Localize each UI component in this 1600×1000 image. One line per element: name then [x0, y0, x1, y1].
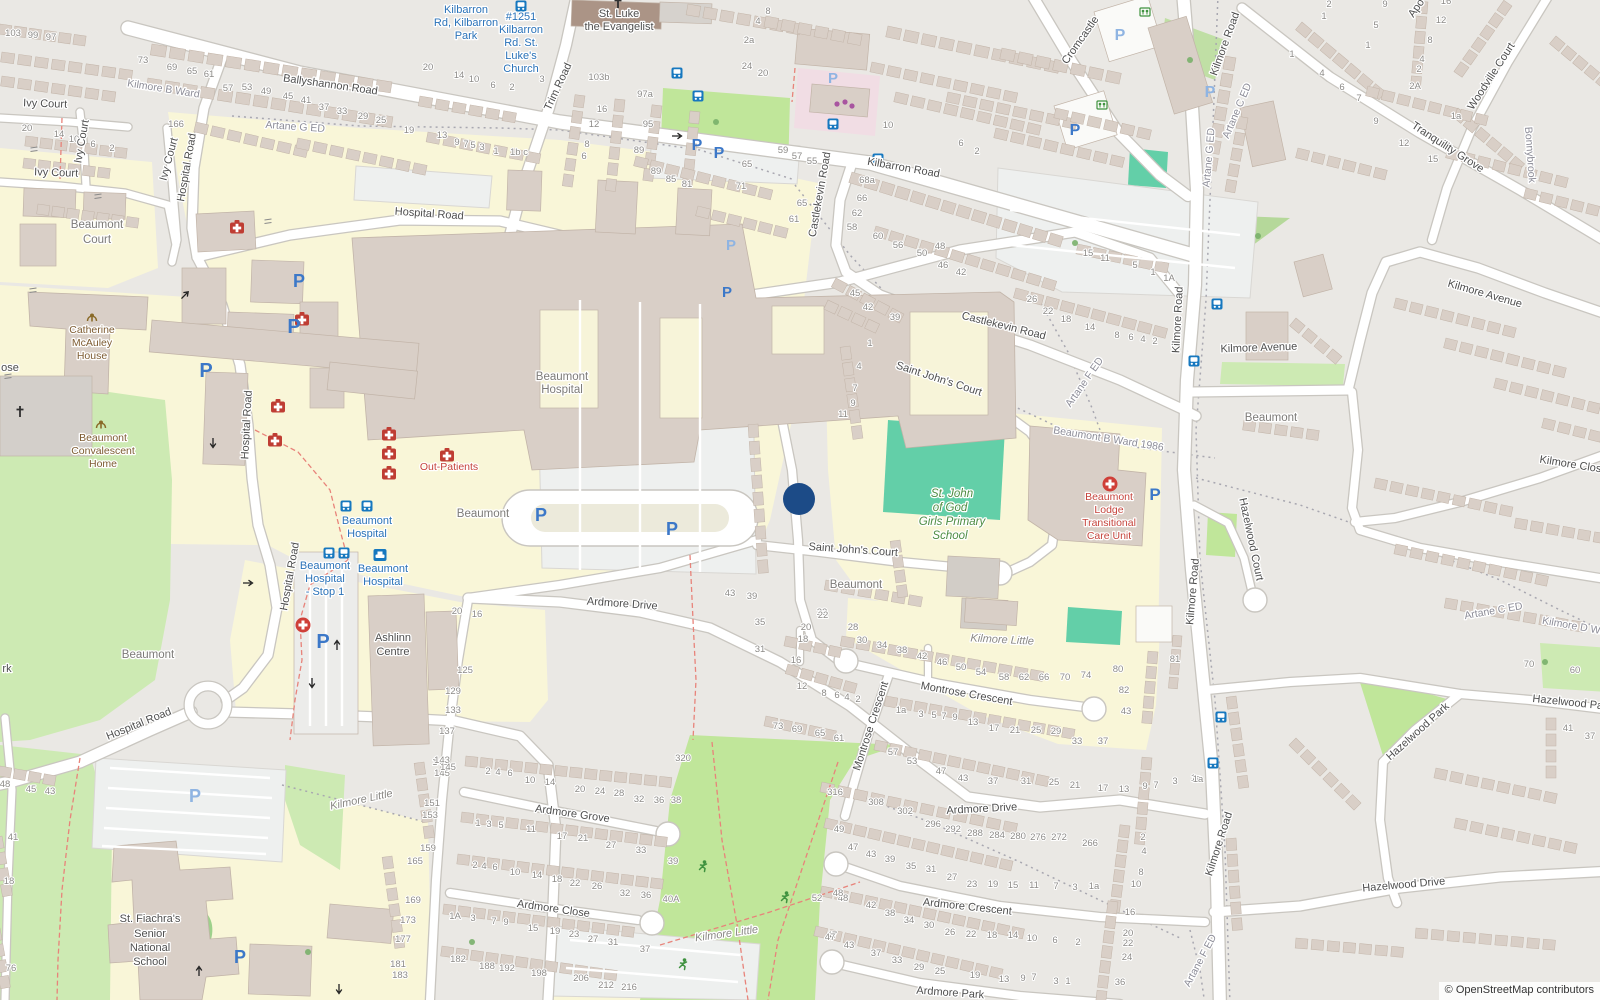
road-label: Ivy Court — [23, 97, 67, 111]
house — [1562, 526, 1576, 538]
house — [1214, 106, 1227, 121]
house — [1374, 478, 1388, 490]
house-number: 308 — [868, 797, 884, 808]
parking-icon[interactable]: P — [293, 271, 305, 291]
house — [749, 441, 760, 455]
bus-stop-icon[interactable] — [1189, 356, 1200, 367]
house-number: 212 — [598, 980, 614, 991]
house — [1519, 571, 1533, 583]
house-number: 20 — [22, 123, 33, 134]
bus-icon-wheel — [341, 555, 343, 557]
house — [1, 52, 15, 64]
house-number: 48 — [833, 888, 844, 899]
house — [1172, 635, 1182, 647]
house-number: 99 — [28, 30, 39, 41]
house-number: 25 — [1031, 725, 1042, 736]
house-number: 24 — [595, 786, 606, 797]
bus-icon-wheel — [345, 555, 347, 557]
house-number: 17 — [557, 831, 568, 842]
house — [635, 876, 648, 887]
house — [896, 585, 908, 598]
house-number: 288 — [967, 828, 983, 839]
house — [1546, 734, 1556, 746]
house — [1463, 932, 1476, 943]
house-number: 8 — [1138, 867, 1143, 878]
house — [720, 10, 735, 23]
house — [1450, 771, 1464, 783]
house — [659, 776, 672, 787]
house-number: 14 — [54, 129, 65, 140]
bus-stop-icon[interactable] — [362, 501, 373, 512]
house — [1306, 429, 1319, 441]
house — [51, 206, 64, 218]
transit-label: Luke's — [505, 50, 537, 62]
bus-icon-window — [1191, 357, 1198, 362]
parking-icon[interactable]: P — [1205, 84, 1216, 101]
taxi-icon[interactable] — [374, 549, 387, 561]
house-number: 80 — [1113, 664, 1124, 675]
house-number: 57 — [888, 747, 899, 758]
parking-icon[interactable]: P — [828, 70, 838, 87]
playground-dot — [1099, 103, 1102, 106]
house-number: 5 — [470, 140, 475, 151]
map-viewport[interactable]: PPPPPPPPPPPPPPPPP10399977369656157534945… — [0, 0, 1600, 1000]
bus-stop-icon[interactable] — [672, 68, 683, 79]
house-number: 74 — [1081, 670, 1092, 681]
house — [565, 158, 577, 171]
building — [910, 312, 988, 415]
house — [1232, 918, 1243, 931]
parking-icon[interactable]: P — [726, 237, 736, 254]
building — [964, 598, 1018, 626]
transit-label: - Stop 1 — [306, 586, 345, 598]
house-number: 41 — [301, 95, 312, 106]
house — [851, 425, 863, 439]
bus-stop-icon[interactable] — [341, 501, 352, 512]
house-number: 40A — [663, 894, 681, 905]
red-label: Lodge — [1094, 504, 1123, 516]
house — [68, 61, 82, 73]
house-number: 181 — [390, 959, 406, 970]
house-number: 62 — [852, 208, 863, 219]
house-number: 9 — [1382, 0, 1387, 10]
house — [0, 766, 12, 778]
house — [1227, 854, 1238, 867]
house-number: 58 — [999, 672, 1010, 683]
house — [754, 509, 765, 523]
house — [1441, 554, 1455, 566]
house — [755, 526, 766, 540]
transit-label: Kilbarron — [499, 24, 543, 36]
house — [1546, 766, 1556, 778]
bus-stop-icon[interactable] — [324, 548, 335, 559]
house-number: 1 — [1321, 11, 1326, 22]
house-number: 5 — [931, 710, 936, 721]
house-number: 47 — [936, 766, 947, 777]
parking-icon[interactable]: P — [535, 505, 547, 525]
culdesac-bulb — [824, 852, 848, 876]
house — [1394, 544, 1408, 556]
tree-icon — [469, 939, 475, 945]
house-number: 125 — [457, 665, 473, 676]
house-number: 6 — [1339, 82, 1344, 93]
map-canvas[interactable]: PPPPPPPPPPPPPPPPP10399977369656157534945… — [0, 0, 1600, 1000]
building — [507, 170, 542, 211]
parking-icon[interactable]: P — [316, 631, 329, 653]
house — [607, 163, 618, 176]
location-marker[interactable] — [783, 483, 815, 515]
hospital-icon-cross-h — [274, 406, 282, 409]
house-number: 6 — [958, 138, 963, 149]
shop-icon[interactable] — [849, 103, 854, 108]
house — [1414, 31, 1425, 44]
house-number: 33 — [636, 845, 647, 856]
house — [1468, 498, 1482, 510]
bus-icon-wheel — [678, 75, 680, 77]
house-number: 16 — [472, 609, 483, 620]
house-number: 25 — [376, 115, 387, 126]
house-number: 49 — [834, 824, 845, 835]
tree-icon — [713, 119, 719, 125]
bus-stop-icon[interactable] — [339, 548, 350, 559]
house-number: 73 — [773, 721, 784, 732]
house-number: 4 — [755, 16, 760, 27]
red-label: Transitional — [1082, 517, 1136, 529]
house — [842, 362, 854, 376]
house-number: 46 — [938, 260, 949, 271]
house-number: 2 — [1152, 336, 1157, 347]
house — [644, 775, 657, 786]
house-number: 2a — [744, 35, 755, 46]
building — [595, 180, 638, 234]
house — [535, 821, 548, 832]
place-label: Beaumont — [536, 371, 589, 383]
house — [1220, 73, 1233, 88]
parking-icon[interactable]: P — [189, 786, 201, 806]
attribution[interactable]: © OpenStreetMap contributors — [1439, 982, 1600, 1000]
building — [20, 224, 56, 266]
house — [1217, 90, 1230, 105]
house — [1452, 495, 1466, 507]
house — [1485, 825, 1499, 837]
house-number: 8 — [1114, 330, 1119, 341]
house-number: 50 — [917, 248, 928, 259]
house-number: 27 — [606, 840, 617, 851]
house — [114, 147, 127, 158]
house-number: 65 — [797, 198, 808, 209]
house-number: 59 — [778, 145, 789, 156]
house — [1142, 711, 1153, 724]
house-number: 5 — [1373, 20, 1378, 31]
building — [248, 944, 312, 996]
parking-icon[interactable]: P — [287, 316, 300, 338]
house — [1107, 901, 1118, 914]
house — [736, 13, 751, 26]
hospital-icon-handle — [276, 399, 281, 402]
house — [748, 424, 759, 438]
house-number: 81 — [682, 179, 693, 190]
house-number: 37 — [319, 102, 330, 113]
house-number: 198 — [531, 968, 547, 979]
house — [468, 105, 483, 117]
bus-icon-wheel — [518, 8, 520, 10]
poi-label: Senior — [134, 928, 166, 940]
parking-icon[interactable]: P — [666, 519, 678, 539]
house — [1563, 841, 1577, 853]
house — [1546, 750, 1556, 762]
house — [1143, 696, 1154, 709]
parking-icon[interactable]: P — [692, 137, 703, 154]
house-number: 43 — [844, 940, 855, 951]
bus-icon-wheel — [368, 508, 370, 510]
clinic-icon[interactable] — [296, 618, 311, 633]
house-number: 50 — [956, 662, 967, 673]
house-number: 65 — [815, 728, 826, 739]
parking-icon[interactable]: P — [1070, 122, 1081, 139]
house-number: 16 — [791, 655, 802, 666]
place-label: Court — [83, 234, 112, 246]
house-number: 10 — [510, 867, 521, 878]
house-number: 82 — [1119, 685, 1130, 696]
house-number: 70 — [1060, 672, 1071, 683]
bus-stop-icon[interactable] — [516, 1, 527, 12]
bus-icon-window — [1214, 300, 1221, 305]
house — [1226, 696, 1238, 709]
house-number: 12 — [589, 119, 600, 130]
house-number: 95 — [643, 119, 654, 130]
house-number: 42 — [917, 651, 928, 662]
house-number: 26 — [945, 927, 956, 938]
culdesac-bulb — [1082, 697, 1106, 721]
house-number: 36 — [1115, 977, 1126, 988]
culdesac-bulb — [1243, 588, 1267, 612]
house-number: 129 — [445, 686, 461, 697]
shop-icon[interactable] — [842, 99, 847, 104]
house — [584, 769, 597, 780]
house — [625, 832, 638, 843]
bus-icon-wheel — [1214, 306, 1216, 308]
house-number: 1 — [1289, 49, 1294, 60]
house-number: 27 — [947, 872, 958, 883]
house — [1235, 759, 1247, 772]
house-number: 9 — [503, 917, 508, 928]
green-label: School — [932, 530, 968, 542]
bus-stop-icon[interactable] — [1208, 758, 1219, 769]
house-number: 25 — [935, 966, 946, 977]
house-number: 22 — [966, 929, 977, 940]
house-number: 41 — [1563, 723, 1574, 734]
house — [457, 854, 470, 865]
house-number: 7 — [1153, 780, 1158, 791]
house — [34, 57, 48, 69]
bus-icon-window — [695, 92, 702, 97]
house — [781, 19, 796, 32]
shop-icon[interactable] — [834, 101, 839, 106]
building — [182, 268, 226, 324]
bus-stop-icon[interactable] — [693, 91, 704, 102]
house — [1488, 564, 1502, 576]
bus-icon-wheel — [522, 8, 524, 10]
house — [1472, 561, 1486, 573]
house-number: 71 — [736, 181, 747, 192]
house-number: 1a — [1451, 111, 1462, 122]
building — [660, 318, 702, 418]
house — [1327, 941, 1340, 952]
house-number: 2 — [1416, 64, 1421, 75]
house — [569, 767, 582, 778]
house-number: 10 — [1131, 879, 1142, 890]
parking-icon[interactable]: P — [234, 947, 246, 967]
house-number: 1 — [867, 338, 872, 349]
house-number: 16 — [597, 104, 608, 115]
house — [1523, 612, 1537, 624]
house-number: 69 — [167, 62, 178, 73]
bus-icon-wheel — [699, 98, 701, 100]
house-number: 41 — [8, 832, 19, 843]
house-number: 34 — [877, 640, 888, 651]
house-number: 31 — [1021, 776, 1032, 787]
house-number: 159 — [420, 843, 436, 854]
house-number: 169 — [405, 895, 421, 906]
parking-icon[interactable]: P — [722, 284, 732, 301]
house-number: 3 — [1053, 976, 1058, 987]
house — [933, 752, 947, 764]
house-number: 30 — [924, 920, 935, 931]
road-label: ose — [1, 362, 19, 374]
house-number: 43 — [45, 786, 56, 797]
house-number: 7 — [1031, 972, 1036, 983]
house-number: 2 — [1075, 937, 1080, 948]
parking-icon[interactable]: P — [1115, 27, 1126, 44]
house — [592, 922, 605, 933]
house-number: 13 — [999, 974, 1010, 985]
house-number: 3 — [479, 142, 484, 153]
playground-dot — [1103, 103, 1106, 106]
building — [1136, 606, 1172, 642]
house-number: 145 — [440, 762, 456, 773]
house — [1096, 990, 1107, 1000]
clinic-icon[interactable] — [1103, 477, 1118, 492]
house-number: 61 — [204, 69, 215, 80]
building — [772, 306, 824, 354]
bus-stop-icon[interactable] — [828, 119, 839, 130]
house-number: 42 — [866, 900, 877, 911]
bus-icon-wheel — [1222, 719, 1224, 721]
bus-icon-wheel — [364, 508, 366, 510]
house — [1454, 818, 1468, 830]
house — [937, 911, 951, 923]
house — [25, 136, 38, 147]
house — [567, 142, 579, 155]
house-number: 1a — [1089, 881, 1100, 892]
house-number: 42 — [863, 302, 874, 313]
building — [946, 556, 1000, 599]
hospital-icon-handle — [445, 448, 450, 451]
house-number: 22 — [570, 878, 581, 889]
building — [196, 211, 256, 252]
house-number: 56 — [893, 240, 904, 251]
house-number: 13 — [1119, 784, 1130, 795]
parking-icon[interactable]: P — [714, 145, 725, 162]
house-number: 34 — [904, 915, 915, 926]
transit-label: Church — [503, 63, 538, 75]
house-number: 22 — [1043, 306, 1054, 317]
house — [97, 167, 110, 178]
parking-icon[interactable]: P — [199, 360, 212, 382]
house — [1144, 681, 1155, 694]
house — [1483, 501, 1497, 513]
house-number: 3 — [470, 913, 475, 924]
house — [13, 769, 27, 781]
house — [1290, 427, 1303, 439]
house-number: 3 — [1172, 776, 1177, 787]
house-number: 183 — [392, 970, 408, 981]
house-number: 9 — [850, 398, 855, 409]
house-number: 57 — [792, 151, 803, 162]
house-number: 19 — [988, 879, 999, 890]
transit-label: Beaumont — [342, 515, 392, 527]
house-number: 4 — [856, 361, 861, 372]
house — [1501, 828, 1515, 840]
house-number: 266 — [1082, 838, 1098, 849]
house-number: 24 — [742, 61, 753, 72]
house — [589, 967, 602, 979]
parking-icon[interactable]: P — [1149, 485, 1160, 504]
culdesac-bulb — [640, 911, 664, 935]
tree-icon — [1255, 233, 1261, 239]
attribution-text: © OpenStreetMap contributors — [1445, 984, 1594, 996]
bus-stop-icon[interactable] — [1212, 299, 1223, 310]
house-number: 25 — [1049, 777, 1060, 788]
house — [1343, 942, 1356, 953]
house-number: 21 — [578, 833, 589, 844]
hospital-icon-cross-h — [385, 453, 393, 456]
house-number: 31 — [755, 644, 766, 655]
house-number: 66 — [857, 193, 868, 204]
poi-label: National — [130, 942, 170, 954]
house-number: 2 — [485, 766, 490, 777]
house-number: 4 — [844, 692, 849, 703]
house-number: 21 — [1010, 725, 1021, 736]
house — [1415, 928, 1428, 939]
red-label: Beaumont — [1085, 491, 1133, 503]
bus-stop-icon[interactable] — [1216, 712, 1227, 723]
house — [756, 543, 767, 557]
house-number: 4 — [1140, 334, 1145, 345]
house — [526, 151, 541, 163]
place-label: Beaumont — [122, 649, 175, 661]
house-number: 1a — [896, 705, 907, 716]
house-number: 85 — [666, 174, 677, 185]
house-number: 20 — [801, 622, 812, 633]
bus-icon-wheel — [330, 555, 332, 557]
house-number: 26 — [1027, 294, 1038, 305]
house — [610, 131, 621, 144]
road-kilmore-avenue-west[interactable] — [1192, 390, 1348, 392]
house-number: 61 — [789, 214, 800, 225]
house — [1503, 567, 1517, 579]
house — [831, 29, 846, 42]
house-number: 89 — [651, 166, 662, 177]
house — [1006, 768, 1020, 780]
house — [606, 872, 619, 883]
bus-icon-wheel — [343, 508, 345, 510]
house-number: 3 — [918, 709, 923, 720]
house — [225, 56, 242, 69]
place-label: Beaumont — [71, 219, 124, 231]
house — [1546, 718, 1556, 730]
house — [1495, 935, 1508, 946]
